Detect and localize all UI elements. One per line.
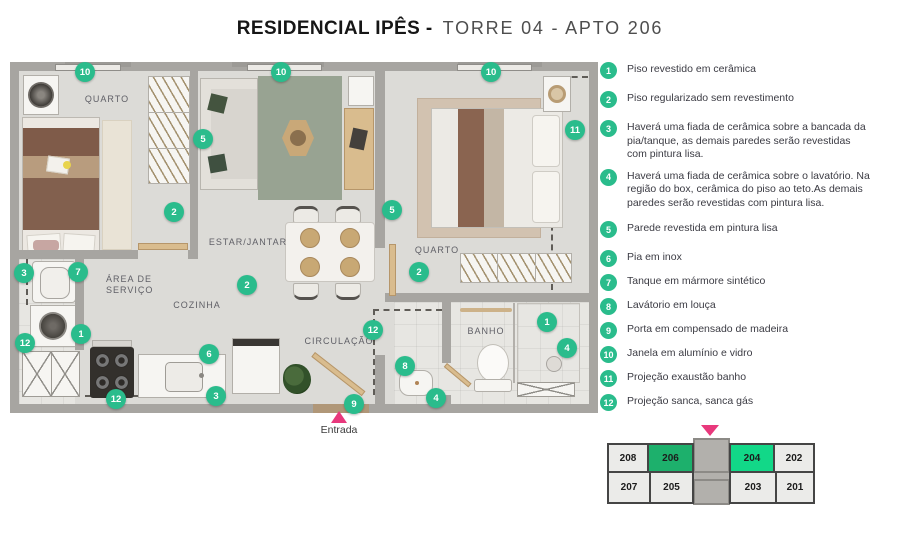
wall xyxy=(375,355,385,404)
plan-marker: 10 xyxy=(271,62,291,82)
plan-marker: 1 xyxy=(71,324,91,344)
legend-text: Janela em alumínio e vidro xyxy=(627,347,871,361)
dining-table xyxy=(285,222,375,282)
legend-marker: 1 xyxy=(600,62,617,79)
room-label-estar-jantar: ESTAR/JANTAR xyxy=(209,237,287,247)
plan-marker: 12 xyxy=(106,389,126,409)
burner-icon xyxy=(95,353,110,368)
legend-text: Tanque em mármore sintético xyxy=(627,275,871,289)
legend-text: Pia em inox xyxy=(627,251,871,265)
title-secondary: TORRE 04 - APTO 206 xyxy=(443,18,664,38)
legend-marker: 8 xyxy=(600,298,617,315)
keyplan-arrow-icon xyxy=(701,425,719,436)
legend-text: Haverá uma fiada de cerâmica sobre a ban… xyxy=(627,121,871,162)
chair xyxy=(335,206,361,223)
shower-glass xyxy=(513,303,515,383)
legend-marker: 10 xyxy=(600,346,617,363)
plant xyxy=(283,364,311,394)
plan-marker: 2 xyxy=(409,262,429,282)
legend-marker: 11 xyxy=(600,370,617,387)
plan-marker: 5 xyxy=(382,200,402,220)
stove-knobs xyxy=(92,340,132,347)
legend-text: Projeção exaustão banho xyxy=(627,371,871,385)
keyplan-unit-202: 202 xyxy=(773,443,815,473)
legend-item: 3Haverá uma fiada de cerâmica sobre a ba… xyxy=(600,121,888,162)
plan-marker: 7 xyxy=(68,262,88,282)
burner-icon xyxy=(114,353,129,368)
wall xyxy=(10,404,313,413)
keyplan-unit-206: 206 xyxy=(647,443,694,473)
pillow xyxy=(208,154,228,174)
sink xyxy=(165,362,203,392)
legend-item: 7Tanque em mármore sintético xyxy=(600,275,888,291)
wall xyxy=(442,301,451,363)
shower-drain-icon xyxy=(546,356,562,372)
burner-icon xyxy=(114,375,129,390)
legend-text: Projeção sanca, sanca gás xyxy=(627,395,871,409)
speaker-box xyxy=(23,75,59,115)
wall xyxy=(19,250,138,259)
legend-marker: 6 xyxy=(600,250,617,267)
plan-marker: 5 xyxy=(193,129,213,149)
legend-text: Lavátorio em louça xyxy=(627,299,871,313)
pillow xyxy=(532,115,560,167)
pillow xyxy=(207,93,228,114)
legend-marker: 7 xyxy=(600,274,617,291)
keyplan-unit-203: 203 xyxy=(729,471,777,504)
room-label-circulacao: CIRCULAÇÃO xyxy=(304,336,373,346)
lamp-icon xyxy=(548,85,566,103)
plan-marker: 2 xyxy=(237,275,257,295)
keyplan: 208 206 204 202 207 205 203 201 xyxy=(605,425,819,509)
plan-marker: 3 xyxy=(14,263,34,283)
plan-marker: 4 xyxy=(426,388,446,408)
decor xyxy=(63,161,71,169)
nightstand xyxy=(543,76,571,112)
laptop xyxy=(349,128,368,151)
burner-icon xyxy=(95,375,110,390)
keyplan-unit-201: 201 xyxy=(775,471,815,504)
fridge xyxy=(232,338,280,394)
shower-bench xyxy=(517,382,575,397)
keyplan-unit-207: 207 xyxy=(607,471,651,504)
wall xyxy=(190,71,198,259)
chair xyxy=(293,283,319,300)
sanca-dashed-line xyxy=(373,309,442,311)
wall xyxy=(385,293,589,302)
faucet-icon xyxy=(199,373,204,378)
legend-item: 1Piso revestido em cerâmica xyxy=(600,63,888,79)
towel-bar xyxy=(460,308,512,312)
legend-item: 9Porta em compensado de madeira xyxy=(600,323,888,339)
plan-marker: 10 xyxy=(75,62,95,82)
legend-item: 11Projeção exaustão banho xyxy=(600,371,888,387)
legend-marker: 4 xyxy=(600,169,617,186)
plan-marker: 9 xyxy=(344,394,364,414)
legend-marker: 3 xyxy=(600,120,617,137)
washing-machine xyxy=(30,305,76,347)
legend-text: Porta em compensado de madeira xyxy=(627,323,871,337)
wall xyxy=(10,62,19,413)
plan-marker: 8 xyxy=(395,356,415,376)
legend-item: 8Lavátorio em louça xyxy=(600,299,888,315)
plan-marker: 1 xyxy=(537,312,557,332)
wall xyxy=(375,71,385,248)
double-bed xyxy=(431,108,563,228)
legend-marker: 12 xyxy=(600,394,617,411)
door-leaf xyxy=(389,244,396,296)
plan-marker: 12 xyxy=(15,333,35,353)
legend: 1Piso revestido em cerâmica 2Piso regula… xyxy=(600,63,888,419)
entrance-arrow-icon xyxy=(331,411,347,423)
room-label-quarto: QUARTO xyxy=(415,245,459,255)
room-label-cozinha: COZINHA xyxy=(173,300,221,310)
keyplan-unit-204: 204 xyxy=(729,443,775,473)
keyplan-unit-205: 205 xyxy=(649,471,694,504)
plan-marker: 4 xyxy=(557,338,577,358)
speaker-icon xyxy=(28,82,54,108)
chair xyxy=(293,206,319,223)
legend-item: 5Parede revestida em pintura lisa xyxy=(600,222,888,238)
legend-text: Haverá uma fiada de cerâmica sobre o lav… xyxy=(627,170,871,211)
plan-marker: 11 xyxy=(565,120,585,140)
title-primary: RESIDENCIAL IPÊS - xyxy=(237,18,433,39)
legend-text: Piso revestido em cerâmica xyxy=(627,63,871,77)
page-title: RESIDENCIAL IPÊS -TORRE 04 - APTO 206 xyxy=(0,18,900,40)
plan-marker: 2 xyxy=(164,202,184,222)
legend-marker: 9 xyxy=(600,322,617,339)
single-bed xyxy=(22,117,100,254)
legend-item: 4Haverá uma fiada de cerâmica sobre o la… xyxy=(600,170,888,211)
legend-text: Piso regularizado sem revestimento xyxy=(627,92,871,106)
cabinet xyxy=(22,351,80,397)
plan-marker: 12 xyxy=(363,320,383,340)
rug xyxy=(102,120,132,250)
keyplan-unit-208: 208 xyxy=(607,443,649,473)
wall xyxy=(188,250,198,259)
entrance-label: Entrada xyxy=(304,424,374,436)
floor-plan: QUARTO ESTAR/JANTAR QUARTO ÁREA DE SERVI… xyxy=(10,62,598,413)
room-label-area-servico: ÁREA DE SERVIÇO xyxy=(106,274,153,296)
legend-item: 10Janela em alumínio e vidro xyxy=(600,347,888,363)
pillow xyxy=(532,171,560,223)
legend-item: 12Projeção sanca, sanca gás xyxy=(600,395,888,411)
wardrobe xyxy=(460,253,572,283)
room-label-banho: BANHO xyxy=(467,326,504,336)
chair xyxy=(335,283,361,300)
legend-item: 6Pia em inox xyxy=(600,251,888,267)
toilet-tank xyxy=(474,379,512,392)
plan-marker: 6 xyxy=(199,344,219,364)
room-label-quarto: QUARTO xyxy=(85,94,129,104)
shelf xyxy=(348,76,374,106)
plan-marker: 3 xyxy=(206,386,226,406)
wardrobe xyxy=(148,76,190,184)
toilet xyxy=(477,344,509,382)
legend-marker: 2 xyxy=(600,91,617,108)
desk xyxy=(344,108,374,190)
plan-marker: 10 xyxy=(481,62,501,82)
legend-marker: 5 xyxy=(600,221,617,238)
wall xyxy=(589,62,598,413)
legend-text: Parede revestida em pintura lisa xyxy=(627,222,871,236)
door-leaf xyxy=(138,243,188,250)
legend-item: 2Piso regularizado sem revestimento xyxy=(600,92,888,108)
wall xyxy=(369,404,598,413)
